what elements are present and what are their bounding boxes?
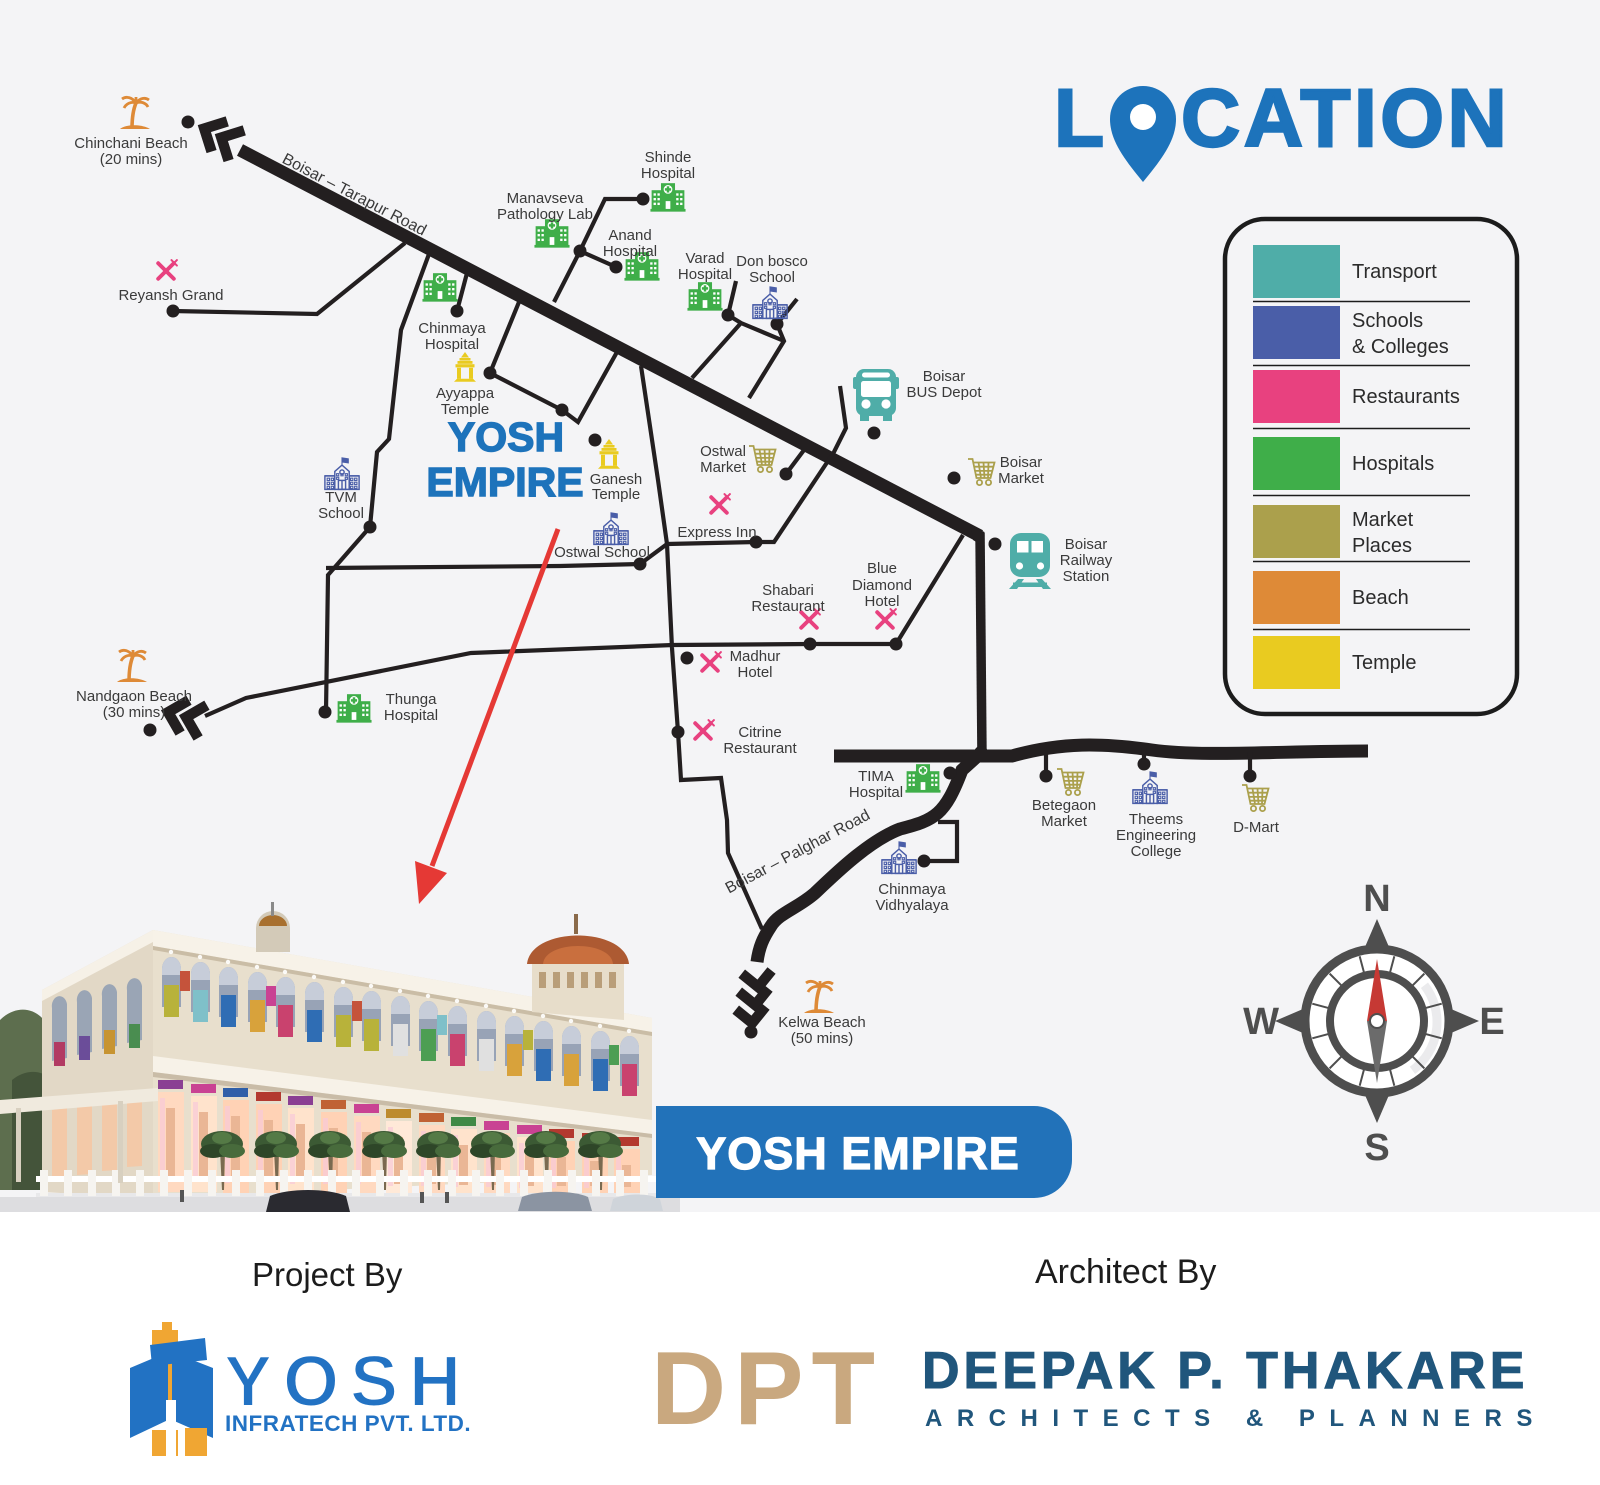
svg-text:Reyansh Grand: Reyansh Grand xyxy=(118,287,223,304)
svg-text:DEEPAK P. THAKARE: DEEPAK P. THAKARE xyxy=(922,1342,1528,1400)
svg-text:S: S xyxy=(1364,1127,1389,1169)
svg-text:BetegaonMarket: BetegaonMarket xyxy=(1032,797,1096,830)
svg-text:BoisarRailwayStation: BoisarRailwayStation xyxy=(1060,536,1113,585)
svg-text:Express Inn: Express Inn xyxy=(677,524,756,541)
svg-text:D-Mart: D-Mart xyxy=(1233,819,1280,836)
svg-text:Restaurants: Restaurants xyxy=(1352,386,1460,408)
svg-text:N: N xyxy=(1363,878,1390,920)
svg-text:YOSHEMPIRE: YOSHEMPIRE xyxy=(426,414,583,505)
svg-text:YOSH EMPIRE: YOSH EMPIRE xyxy=(696,1128,1020,1179)
svg-text:Kelwa Beach(50 mins): Kelwa Beach(50 mins) xyxy=(778,1014,866,1047)
svg-text:YOSH: YOSH xyxy=(224,1342,472,1422)
svg-text:ARCHITECTS & PLANNERS: ARCHITECTS & PLANNERS xyxy=(925,1405,1547,1432)
svg-text:ChinmayaVidhyalaya: ChinmayaVidhyalaya xyxy=(875,881,949,914)
svg-text:ThungaHospital: ThungaHospital xyxy=(384,691,438,724)
svg-text:DPT: DPT xyxy=(651,1331,883,1447)
svg-text:BoisarMarket: BoisarMarket xyxy=(998,454,1045,487)
svg-text:Beach: Beach xyxy=(1352,587,1409,609)
svg-text:ShindeHospital: ShindeHospital xyxy=(641,149,695,182)
svg-text:W: W xyxy=(1243,1001,1279,1043)
svg-text:Architect By: Architect By xyxy=(1035,1253,1216,1291)
svg-text:INFRATECH PVT. LTD.: INFRATECH PVT. LTD. xyxy=(225,1411,471,1436)
svg-text:OstwalMarket: OstwalMarket xyxy=(700,443,747,476)
svg-text:VaradHospital: VaradHospital xyxy=(678,250,732,283)
svg-text:Hospitals: Hospitals xyxy=(1352,453,1434,475)
svg-text:ManavsevaPathology Lab: ManavsevaPathology Lab xyxy=(497,190,593,223)
svg-text:Transport: Transport xyxy=(1352,261,1437,283)
svg-text:Temple: Temple xyxy=(1352,652,1416,674)
svg-text:AnandHospital: AnandHospital xyxy=(603,227,657,260)
svg-text:E: E xyxy=(1479,1001,1504,1043)
svg-text:GaneshTemple: GaneshTemple xyxy=(590,471,643,503)
svg-text:ChinmayaHospital: ChinmayaHospital xyxy=(418,320,486,353)
svg-text:Ostwal School: Ostwal School xyxy=(554,544,650,561)
svg-text:Project By: Project By xyxy=(252,1256,403,1293)
